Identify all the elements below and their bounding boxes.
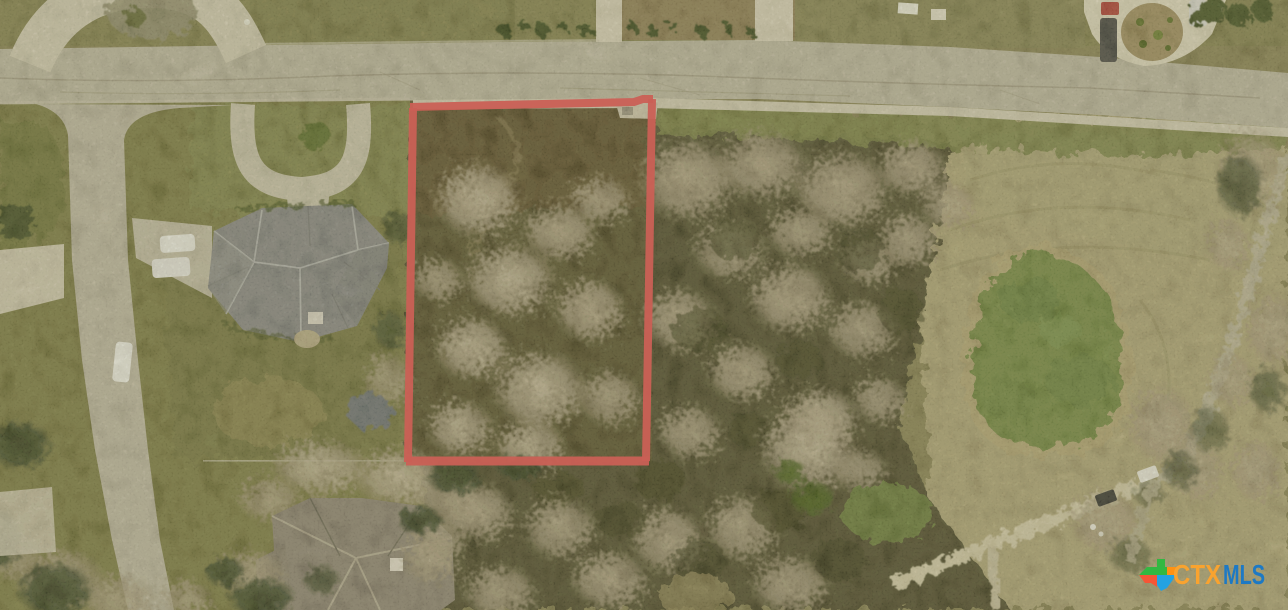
- svg-text:CTX: CTX: [1173, 559, 1221, 590]
- svg-text:MLS: MLS: [1223, 559, 1265, 590]
